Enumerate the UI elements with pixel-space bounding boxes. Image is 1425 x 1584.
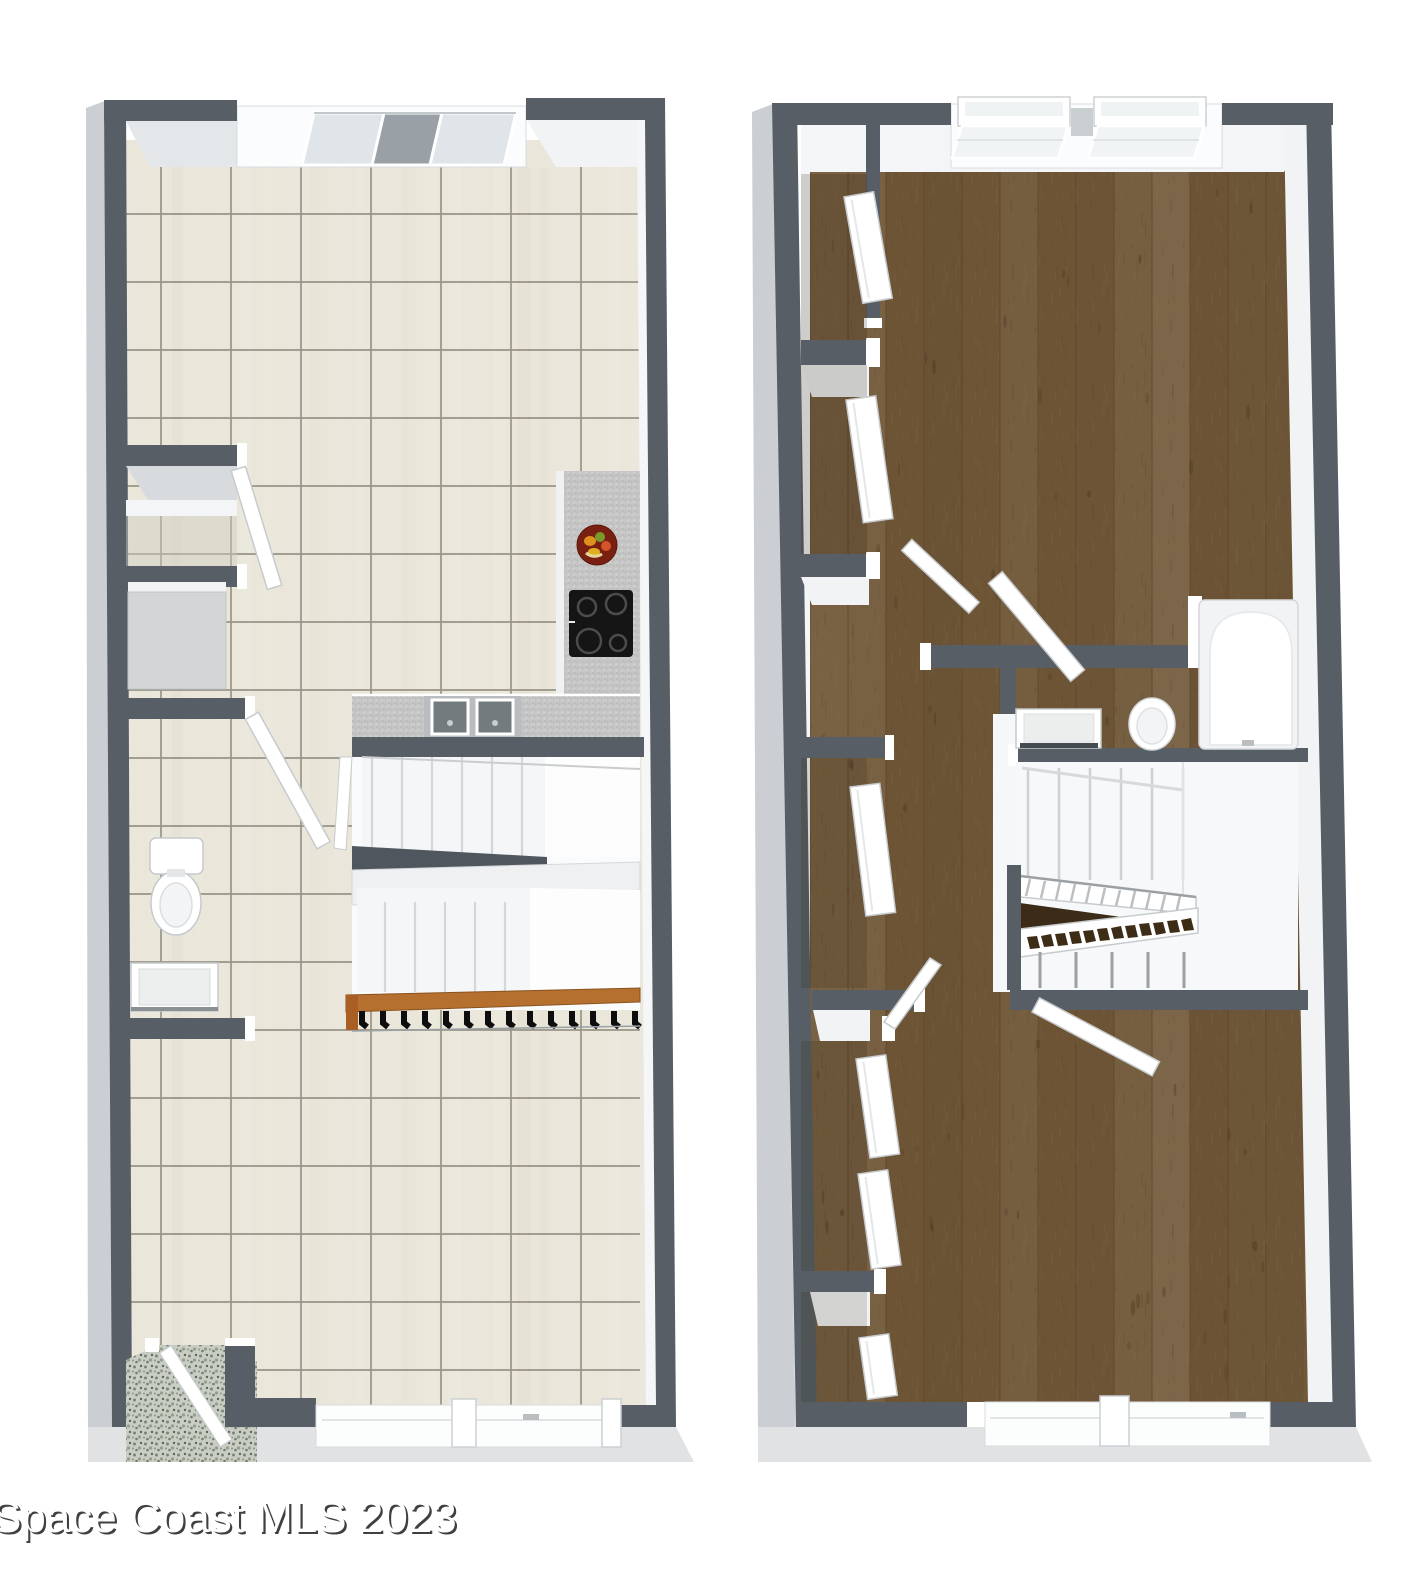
svg-text:Space Coast MLS 2023: Space Coast MLS 2023 (0, 1493, 457, 1542)
